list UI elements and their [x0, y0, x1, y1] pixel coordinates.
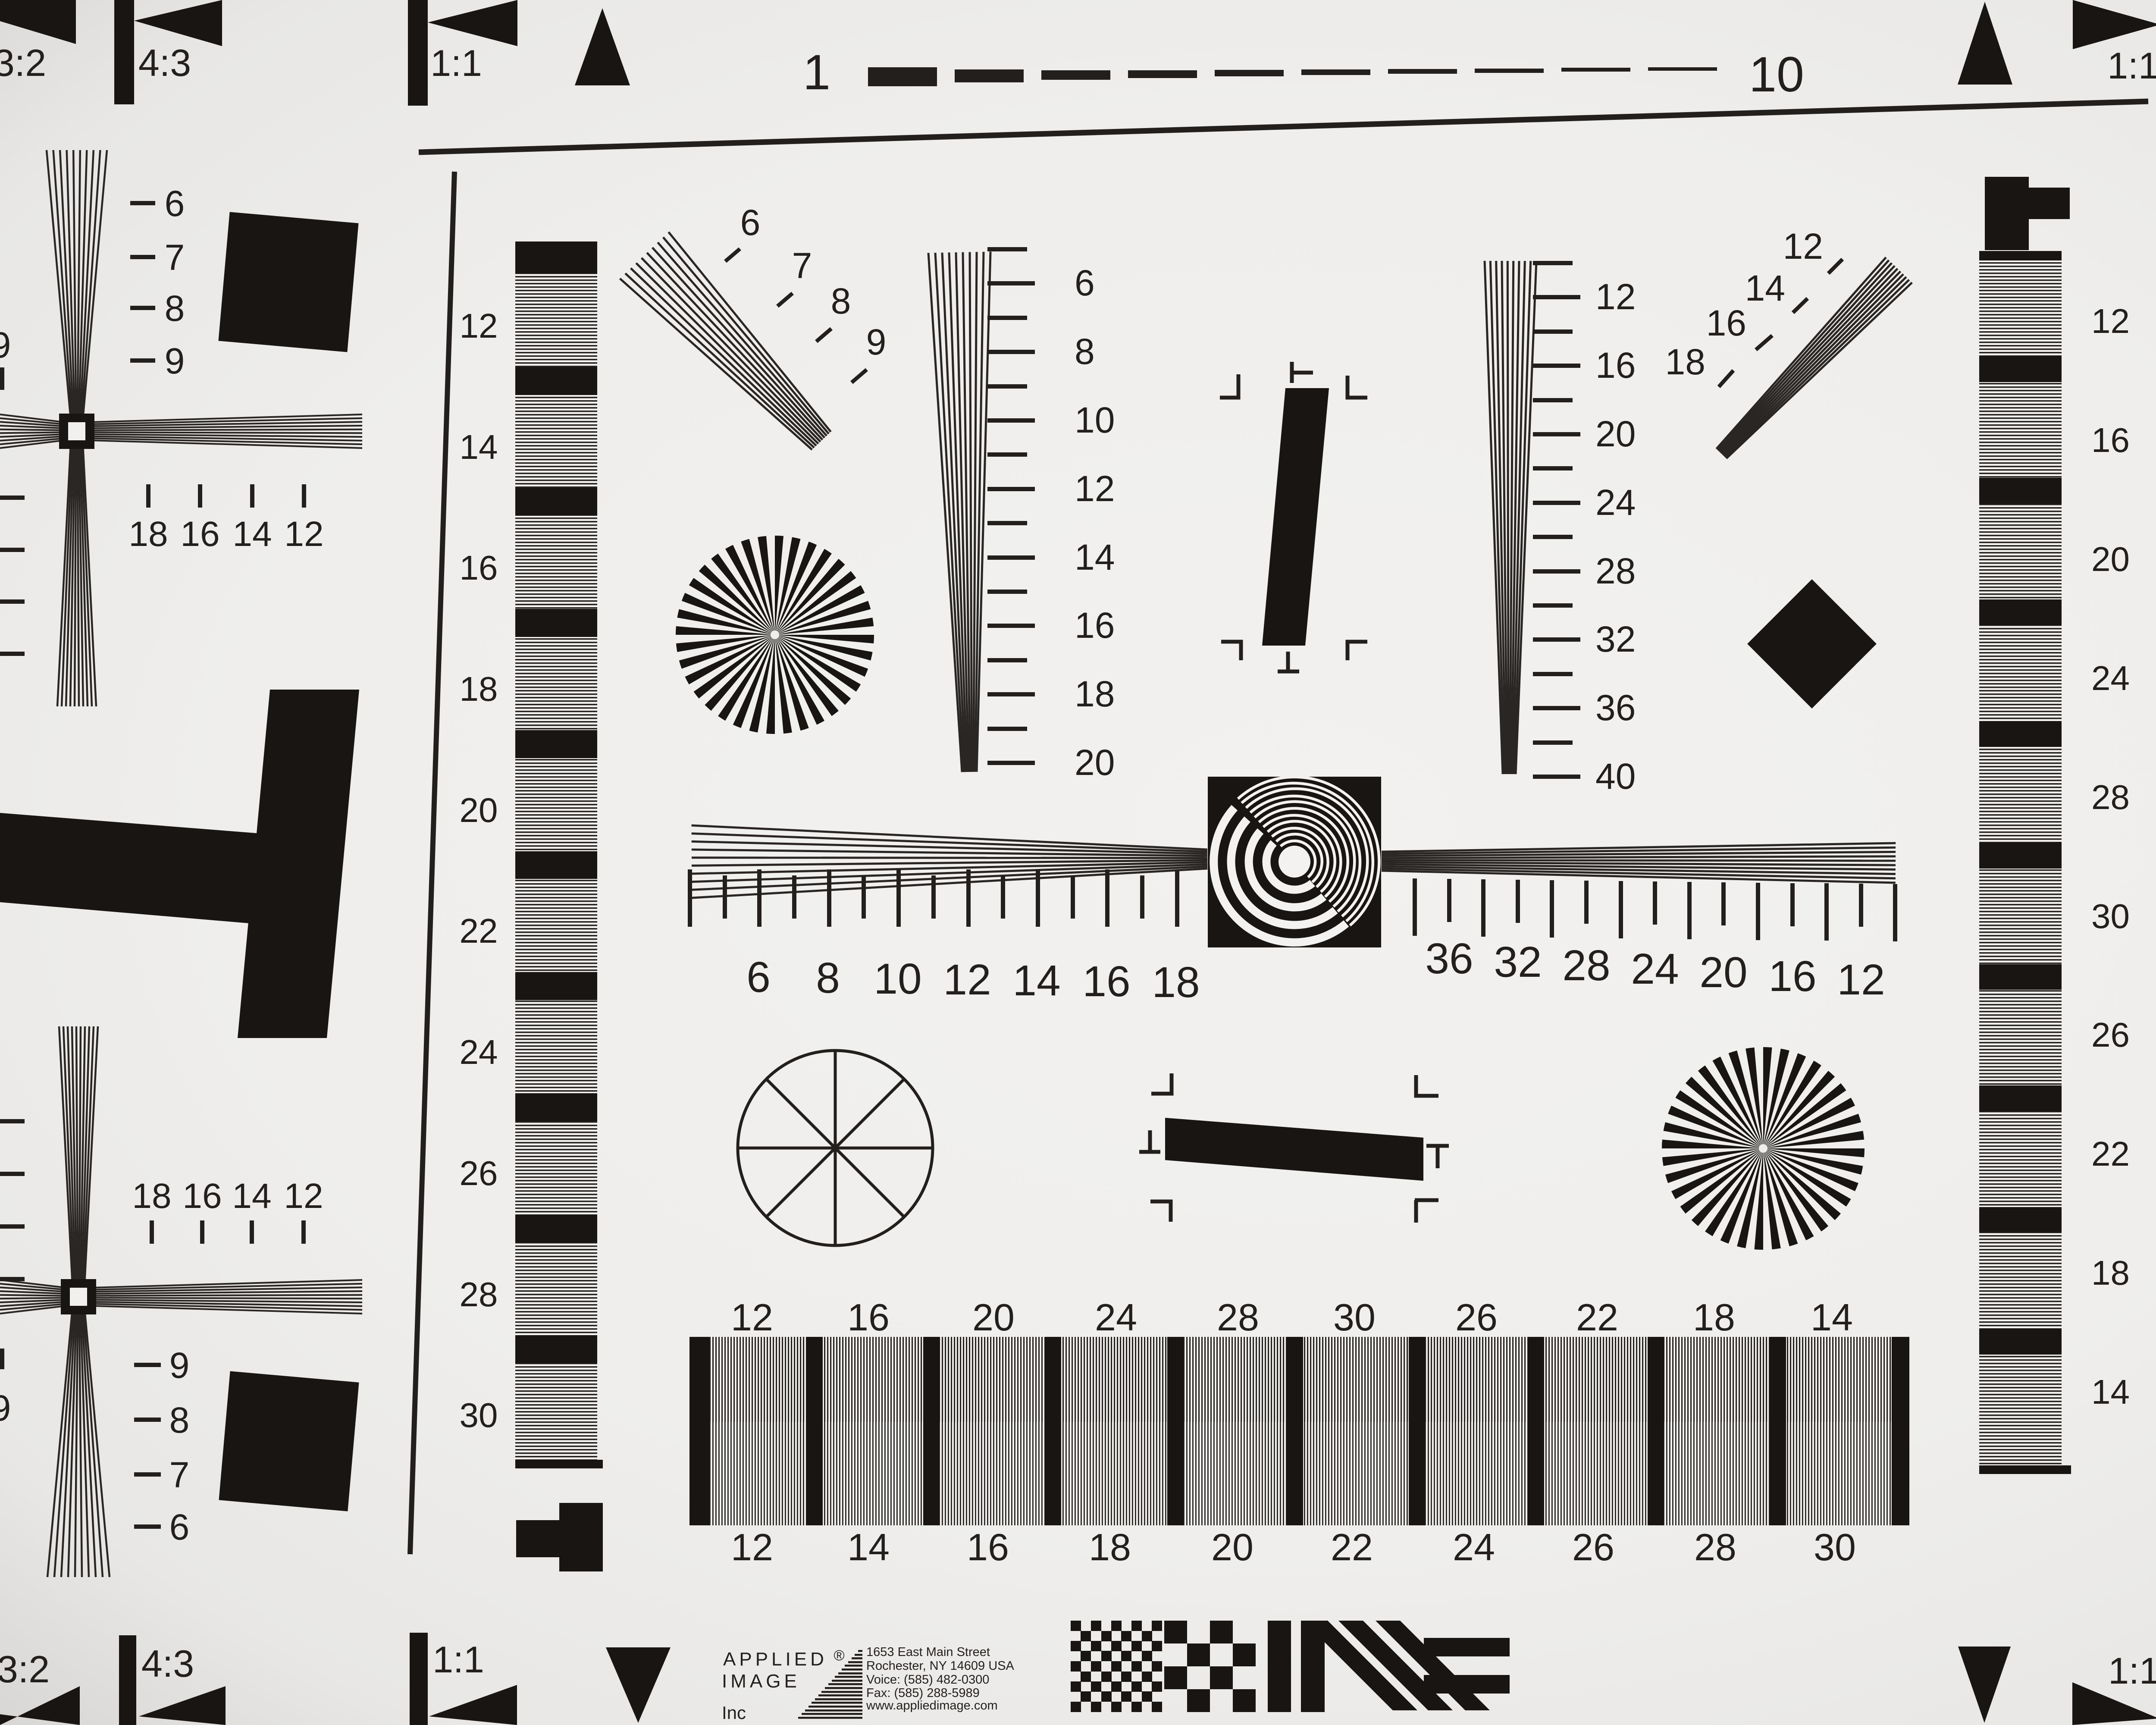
- svg-text:9: 9: [0, 1388, 11, 1428]
- svg-text:18: 18: [128, 514, 168, 554]
- svg-text:28: 28: [2091, 778, 2130, 816]
- svg-text:14: 14: [1745, 268, 1785, 308]
- svg-text:22: 22: [1331, 1526, 1373, 1568]
- svg-text:14: 14: [847, 1526, 890, 1568]
- svg-text:1:1: 1:1: [430, 43, 482, 84]
- svg-text:28: 28: [1562, 941, 1610, 990]
- svg-text:18: 18: [132, 1176, 171, 1216]
- svg-text:8: 8: [816, 954, 840, 1002]
- svg-text:24: 24: [2091, 659, 2130, 697]
- svg-text:16: 16: [182, 1176, 222, 1216]
- svg-text:30: 30: [460, 1396, 498, 1434]
- svg-text:18: 18: [460, 670, 498, 708]
- svg-text:12: 12: [1783, 226, 1823, 267]
- svg-text:12: 12: [284, 514, 323, 554]
- svg-text:26: 26: [1455, 1296, 1498, 1339]
- svg-text:36: 36: [1595, 687, 1636, 728]
- svg-text:14: 14: [2091, 1373, 2130, 1411]
- svg-text:14: 14: [1811, 1296, 1853, 1339]
- svg-text:30: 30: [2091, 897, 2130, 935]
- svg-text:6: 6: [1075, 263, 1095, 303]
- svg-text:16: 16: [967, 1526, 1009, 1568]
- svg-text:14: 14: [1075, 537, 1115, 577]
- svg-text:6: 6: [746, 953, 771, 1001]
- svg-text:24: 24: [1595, 482, 1636, 523]
- svg-text:Inc: Inc: [722, 1703, 746, 1723]
- svg-text:7: 7: [792, 245, 812, 286]
- svg-text:20: 20: [2091, 540, 2130, 578]
- svg-text:22: 22: [1576, 1296, 1618, 1339]
- svg-text:1:1: 1:1: [2108, 1650, 2156, 1692]
- svg-text:14: 14: [232, 1176, 271, 1216]
- svg-text:3:2: 3:2: [0, 41, 46, 84]
- svg-text:1: 1: [803, 45, 830, 100]
- svg-text:12: 12: [943, 956, 991, 1004]
- svg-text:32: 32: [1595, 619, 1636, 659]
- svg-text:40: 40: [1595, 756, 1636, 797]
- svg-text:22: 22: [2091, 1135, 2130, 1173]
- svg-text:9: 9: [169, 1345, 190, 1386]
- svg-text:30: 30: [1333, 1296, 1376, 1339]
- svg-text:26: 26: [1572, 1526, 1614, 1568]
- svg-text:20: 20: [1211, 1526, 1253, 1568]
- svg-text:16: 16: [847, 1296, 890, 1339]
- svg-text:24: 24: [1453, 1526, 1495, 1568]
- svg-text:6: 6: [165, 183, 185, 224]
- svg-text:Rochester, NY 14609 USA: Rochester, NY 14609 USA: [866, 1659, 1014, 1673]
- svg-text:18: 18: [1693, 1296, 1735, 1339]
- svg-text:9: 9: [165, 341, 185, 381]
- svg-text:12: 12: [1837, 956, 1885, 1004]
- svg-text:6: 6: [740, 202, 761, 243]
- svg-text:12: 12: [731, 1296, 773, 1339]
- svg-text:10: 10: [874, 955, 921, 1003]
- svg-text:12: 12: [2091, 302, 2130, 340]
- svg-text:8: 8: [165, 288, 185, 329]
- svg-text:16: 16: [1706, 303, 1746, 343]
- svg-text:12: 12: [284, 1176, 323, 1216]
- svg-text:10: 10: [1749, 47, 1804, 102]
- svg-text:26: 26: [2091, 1016, 2130, 1054]
- svg-text:9: 9: [0, 325, 11, 365]
- svg-text:9: 9: [866, 322, 887, 362]
- svg-text:16: 16: [1595, 345, 1636, 386]
- svg-text:24: 24: [1631, 945, 1679, 993]
- svg-text:18: 18: [2091, 1254, 2130, 1292]
- svg-text:28: 28: [1694, 1526, 1736, 1568]
- svg-text:1:1: 1:1: [2107, 45, 2156, 87]
- svg-text:APPLIED: APPLIED: [723, 1649, 827, 1670]
- svg-text:8: 8: [831, 281, 851, 321]
- svg-text:Fax: (585) 288-5989: Fax: (585) 288-5989: [866, 1686, 980, 1700]
- svg-text:14: 14: [460, 428, 498, 466]
- svg-text:12: 12: [1595, 276, 1636, 317]
- svg-text:8: 8: [169, 1400, 190, 1440]
- svg-text:22: 22: [460, 912, 498, 950]
- svg-text:www.appliedimage.com: www.appliedimage.com: [866, 1699, 998, 1712]
- svg-text:26: 26: [460, 1154, 498, 1192]
- svg-text:14: 14: [232, 514, 272, 554]
- svg-text:3:2: 3:2: [0, 1648, 50, 1690]
- svg-text:20: 20: [1075, 742, 1115, 783]
- svg-text:32: 32: [1494, 938, 1542, 986]
- svg-text:28: 28: [1595, 551, 1636, 591]
- svg-text:16: 16: [2091, 421, 2130, 459]
- svg-text:7: 7: [169, 1455, 190, 1495]
- svg-text:28: 28: [1217, 1296, 1259, 1339]
- svg-text:18: 18: [1075, 674, 1115, 714]
- svg-text:IMAGE: IMAGE: [722, 1671, 800, 1692]
- svg-text:1:1: 1:1: [432, 1639, 484, 1681]
- svg-text:14: 14: [1012, 957, 1060, 1005]
- svg-text:20: 20: [1595, 414, 1636, 454]
- svg-text:28: 28: [460, 1275, 498, 1314]
- svg-text:Voice: (585) 482-0300: Voice: (585) 482-0300: [866, 1673, 989, 1687]
- svg-text:18: 18: [1152, 958, 1200, 1007]
- svg-text:16: 16: [1075, 605, 1115, 646]
- svg-text:6: 6: [169, 1507, 190, 1547]
- svg-text:36: 36: [1425, 935, 1473, 983]
- svg-text:12: 12: [731, 1526, 773, 1568]
- svg-text:18: 18: [1665, 342, 1705, 382]
- svg-text:12: 12: [460, 307, 498, 345]
- svg-text:1653 East Main Street: 1653 East Main Street: [866, 1645, 990, 1659]
- svg-text:4:3: 4:3: [138, 41, 191, 84]
- svg-text:4:3: 4:3: [141, 1642, 194, 1685]
- svg-text:24: 24: [460, 1033, 498, 1071]
- svg-text:20: 20: [972, 1296, 1015, 1339]
- svg-text:10: 10: [1075, 400, 1115, 440]
- svg-text:16: 16: [1768, 952, 1816, 1000]
- svg-text:18: 18: [1089, 1526, 1131, 1568]
- svg-text:16: 16: [1082, 957, 1130, 1006]
- svg-text:16: 16: [180, 514, 219, 554]
- svg-text:8: 8: [1075, 331, 1095, 372]
- svg-text:20: 20: [1699, 948, 1747, 997]
- svg-text:20: 20: [460, 791, 498, 829]
- svg-text:7: 7: [165, 237, 185, 278]
- svg-text:®: ®: [834, 1647, 844, 1664]
- svg-text:16: 16: [460, 549, 498, 587]
- svg-text:30: 30: [1814, 1526, 1856, 1568]
- svg-text:24: 24: [1095, 1296, 1137, 1339]
- svg-text:12: 12: [1075, 468, 1115, 509]
